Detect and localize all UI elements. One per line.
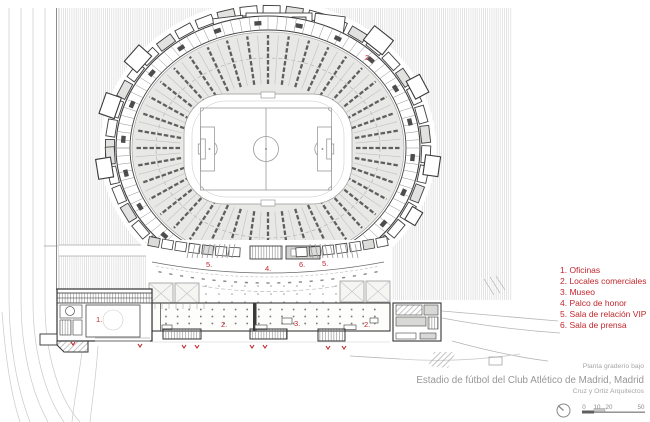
sheet-title: Estadio de fútbol del Club Atlético de M… <box>416 375 644 386</box>
legend-item-museo: 3. Museo <box>560 287 646 298</box>
legend-item-prensa: 6. Sala de prensa <box>560 320 646 331</box>
plan-label-6: 6. <box>299 260 305 269</box>
plan-label-1: 1. <box>96 315 102 324</box>
architects-credit: Cruz y Ortiz Arquitectos <box>573 388 644 395</box>
legend: 1. Oficinas 2. Locales comerciales 3. Mu… <box>560 265 646 332</box>
legend-item-palco: 4. Palco de honor <box>560 298 646 309</box>
detached-building <box>393 303 441 341</box>
scale-tick-0: 0 <box>582 404 586 411</box>
site-plan-drawing: 2.5.4.6.5.1.2.3.2. 0 10 20 50 <box>0 0 650 422</box>
legend-item-vip: 5. Sala de relación VIP <box>560 309 646 320</box>
plan-level-label: Planta graderío bajo <box>583 363 644 370</box>
ramp-hatch <box>428 352 456 368</box>
scale-tick-20: 20 <box>606 404 613 411</box>
plan-label-2: 2. <box>364 320 370 329</box>
north-arrow-icon <box>557 404 570 417</box>
plan-label-4: 4. <box>265 264 271 273</box>
plan-label-2: 2. <box>365 53 371 62</box>
access-road-west <box>59 245 150 256</box>
plan-label-5: 5. <box>322 259 328 268</box>
small-structure <box>489 357 502 365</box>
plan-label-5: 5. <box>206 260 212 269</box>
plan-label-2: 2. <box>221 320 227 329</box>
entrance-markers <box>71 342 346 349</box>
legend-item-locales: 2. Locales comerciales <box>560 276 646 287</box>
architectural-sheet: 2.5.4.6.5.1.2.3.2. 0 10 20 50 1. Oficina… <box>0 0 650 422</box>
legend-item-oficinas: 1. Oficinas <box>560 265 646 276</box>
scale-bar: 0 10 20 50 <box>582 404 645 414</box>
football-pitch <box>198 108 333 190</box>
scale-tick-50: 50 <box>638 404 645 411</box>
plan-label-3: 3. <box>294 319 300 328</box>
